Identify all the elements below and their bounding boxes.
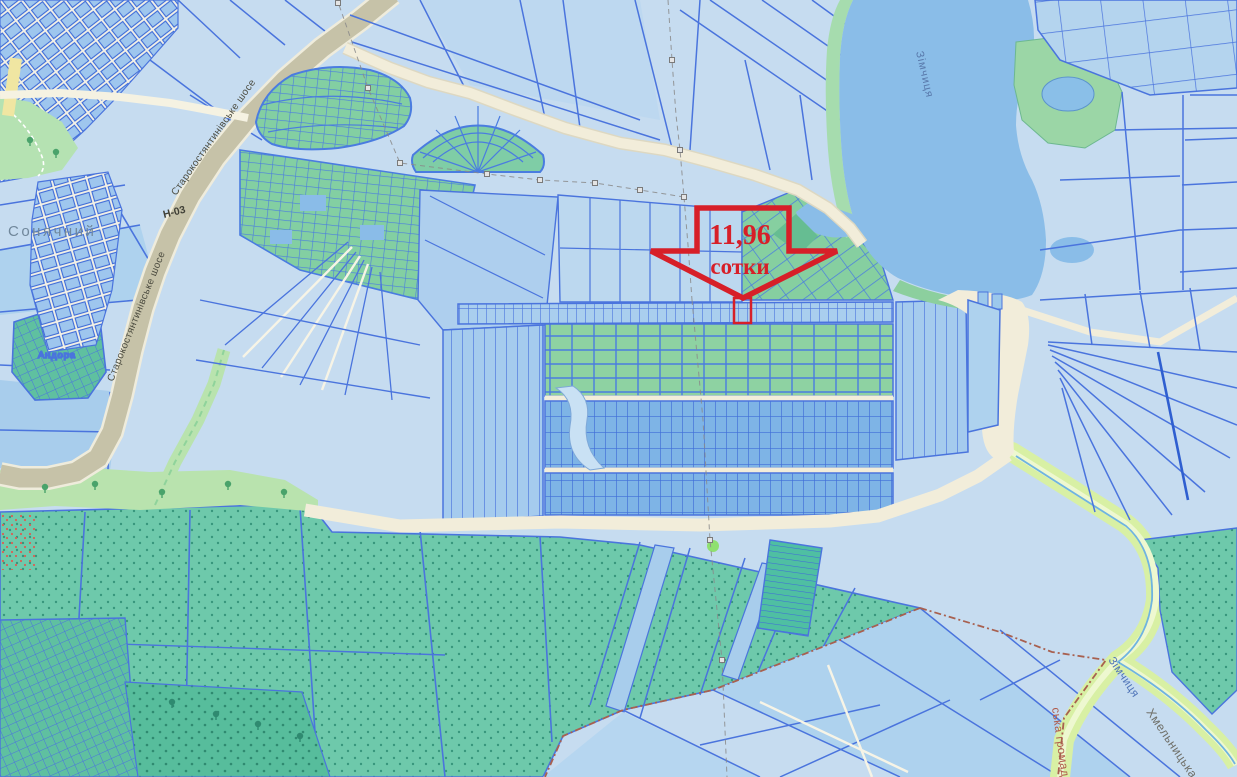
ribbed-block bbox=[896, 300, 968, 460]
annotation-value: 11,96 bbox=[709, 220, 770, 251]
subdivision-label: Андора bbox=[38, 350, 76, 361]
map-canvas[interactable]: Зімчиця Хмельницька міська г ська громад… bbox=[0, 0, 1237, 777]
annotation-unit: сотки bbox=[710, 254, 769, 279]
map-viewport[interactable]: Зімчиця Хмельницька міська г ська громад… bbox=[0, 0, 1237, 777]
town-label: Сонячний bbox=[8, 223, 96, 240]
allotment-green-band bbox=[545, 324, 893, 396]
